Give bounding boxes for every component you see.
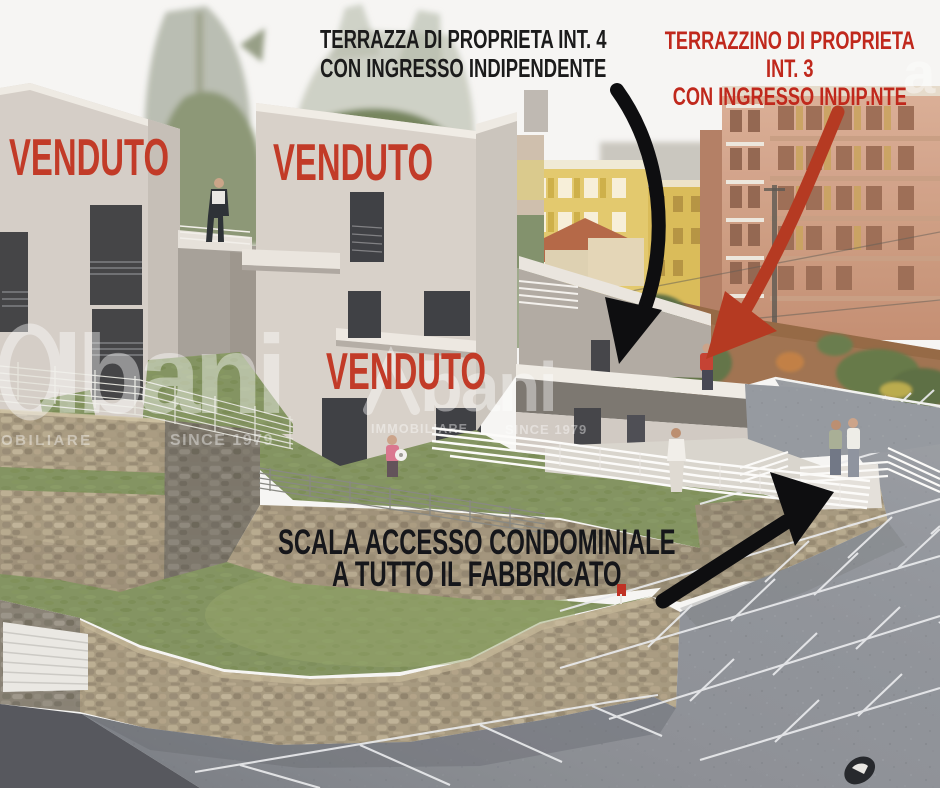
svg-text:SINCE 1979: SINCE 1979 (170, 432, 274, 449)
svg-text:IMMOBILIARE: IMMOBILIARE (371, 422, 468, 436)
svg-text:MOBILIARE: MOBILIARE (0, 432, 93, 449)
svg-text:lbani: lbani (52, 313, 281, 437)
svg-text:SINCE 1979: SINCE 1979 (505, 422, 587, 437)
